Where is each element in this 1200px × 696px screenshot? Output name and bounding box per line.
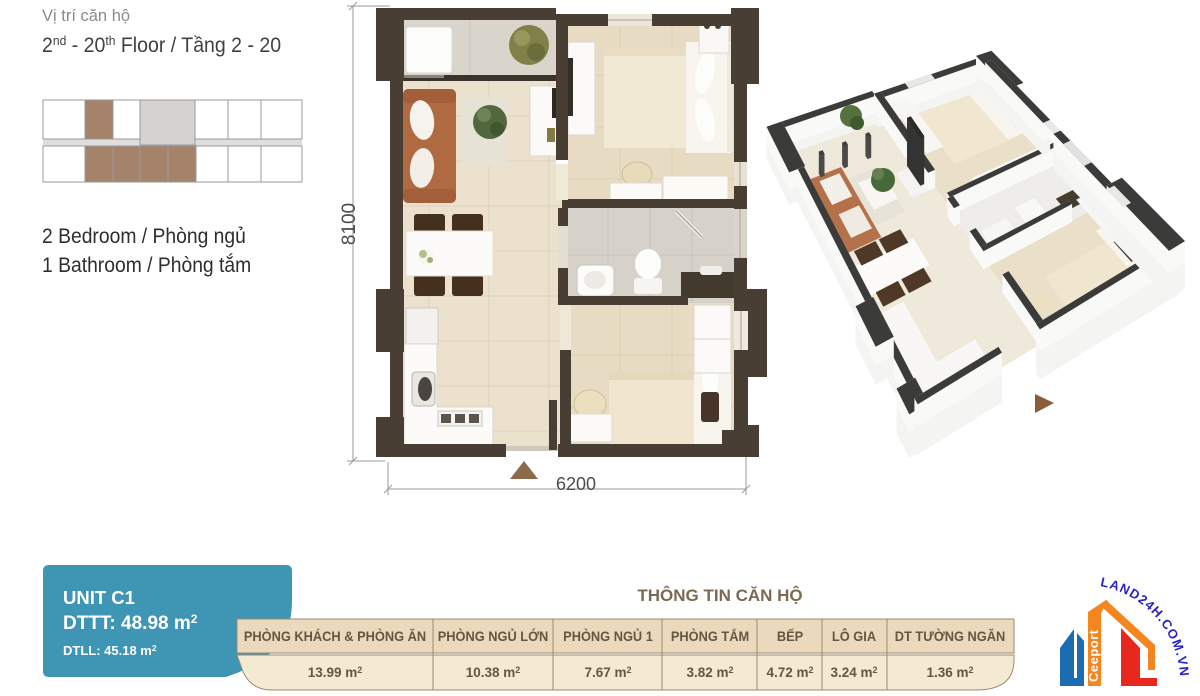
svg-text:BẾP: BẾP	[777, 629, 804, 644]
svg-text:LAND24H.COM.VN: LAND24H.COM.VN	[1099, 574, 1192, 677]
svg-text:DTLL: 45.18 m2: DTLL: 45.18 m2	[63, 643, 157, 658]
svg-text:6200: 6200	[556, 474, 596, 494]
svg-text:7.67 m2: 7.67 m2	[584, 665, 631, 680]
svg-text:2 Bedroom / Phòng ngủ: 2 Bedroom / Phòng ngủ	[42, 225, 246, 248]
svg-text:3.24 m2: 3.24 m2	[830, 665, 877, 680]
svg-text:PHÒNG TẮM: PHÒNG TẮM	[671, 629, 749, 644]
svg-text:1.36 m2: 1.36 m2	[926, 665, 973, 680]
svg-text:2nd - 20th Floor / Tầng 2 - 20: 2nd - 20th Floor / Tầng 2 - 20	[42, 34, 281, 58]
svg-text:Ceeport: Ceeport	[1086, 629, 1101, 682]
svg-text:UNIT C1: UNIT C1	[63, 587, 135, 608]
svg-text:4.72 m2: 4.72 m2	[766, 665, 813, 680]
svg-text:1 Bathroom / Phòng tắm: 1 Bathroom / Phòng tắm	[42, 253, 251, 277]
svg-text:DTTT: 48.98 m2: DTTT: 48.98 m2	[63, 612, 198, 634]
svg-text:8100: 8100	[339, 203, 360, 245]
svg-text:PHÒNG NGỦ LỚN: PHÒNG NGỦ LỚN	[438, 629, 549, 644]
svg-text:PHÒNG NGỦ 1: PHÒNG NGỦ 1	[563, 629, 653, 644]
svg-text:PHÒNG KHÁCH & PHÒNG ĂN: PHÒNG KHÁCH & PHÒNG ĂN	[244, 629, 426, 644]
svg-text:10.38 m2: 10.38 m2	[466, 665, 521, 680]
svg-text:Vị trí căn hộ: Vị trí căn hộ	[42, 7, 130, 25]
svg-text:LÔ GIA: LÔ GIA	[832, 629, 877, 644]
svg-text:THÔNG TIN CĂN HỘ: THÔNG TIN CĂN HỘ	[637, 586, 802, 605]
svg-text:3.82 m2: 3.82 m2	[686, 665, 733, 680]
svg-text:13.99 m2: 13.99 m2	[308, 665, 363, 680]
svg-text:DT TƯỜNG NGĂN: DT TƯỜNG NGĂN	[895, 629, 1006, 644]
